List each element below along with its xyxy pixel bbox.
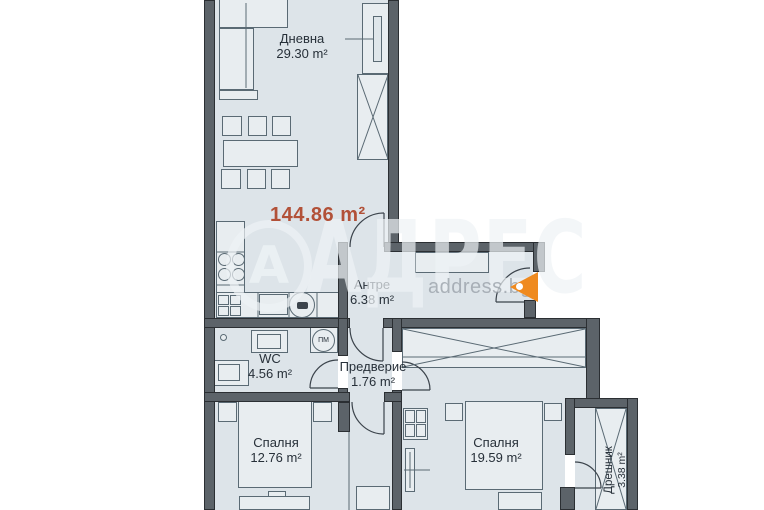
dresser-drawer: [416, 424, 426, 437]
room-area: 6.38 m²: [350, 292, 394, 307]
dresser: [498, 492, 542, 510]
room-name: WC: [259, 351, 281, 366]
floor-plan: ПМ: [0, 0, 764, 510]
cabinet: [356, 486, 390, 510]
room-name: Спалня: [253, 435, 298, 450]
room-area: 19.59 m²: [470, 450, 521, 465]
room-label-closet-area: 3.38 m²: [616, 452, 628, 488]
room-label-bedroom-1: Спалня 12.76 m²: [250, 435, 301, 465]
nightstand: [218, 402, 237, 422]
dining-chair: [248, 116, 267, 136]
sofa-side: [219, 28, 254, 90]
room-label-closet-name: Дрешник: [603, 446, 615, 494]
sofa-armrest: [219, 90, 258, 100]
wall: [338, 402, 350, 432]
wardrobe: [357, 74, 388, 160]
wall: [392, 318, 402, 352]
entrance-marker-dot: [516, 283, 523, 290]
room-label-vestibule: Предверие 1.76 m²: [340, 359, 407, 389]
wall: [560, 487, 575, 510]
room-name: Антре: [354, 277, 390, 292]
cooktop-burner: [232, 268, 245, 281]
room-label-entrance-hall: Антре 6.38 m²: [350, 277, 394, 307]
tv-panel: [405, 448, 415, 492]
tv-panel: [373, 16, 382, 62]
wall: [586, 318, 600, 402]
wall: [204, 392, 350, 402]
dresser: [239, 496, 310, 510]
kitchen-appliance: [259, 294, 288, 315]
wall: [383, 318, 600, 328]
dining-table: [223, 140, 298, 167]
wall: [384, 392, 402, 402]
dining-chair: [247, 169, 266, 189]
room-name: Предверие: [340, 359, 407, 374]
wall: [204, 0, 215, 510]
dresser-drawer: [405, 410, 415, 423]
wall: [338, 242, 348, 328]
room-area: 29.30 m²: [276, 46, 327, 61]
wc-sink-basin: [218, 364, 240, 381]
wall: [388, 0, 399, 252]
room-name: Спалня: [473, 435, 518, 450]
wall: [204, 318, 350, 328]
dresser-drawer: [405, 424, 415, 437]
nightstand: [313, 402, 332, 422]
wall: [392, 390, 402, 510]
room-area: 12.76 m²: [250, 450, 301, 465]
wall: [524, 300, 536, 318]
dresser-drawer: [416, 410, 426, 423]
room-area: 4.56 m²: [248, 366, 292, 381]
wall: [627, 398, 638, 510]
kitchen-sink-bowl: [230, 306, 241, 316]
room-label-bedroom-2: Спалня 19.59 m²: [470, 435, 521, 465]
wall: [338, 318, 348, 356]
dishwasher-knob: [297, 302, 308, 309]
nightstand: [445, 403, 463, 421]
wc-drain: [220, 334, 227, 341]
dining-chair: [272, 116, 291, 136]
room-label-wc: WC 4.56 m²: [248, 351, 292, 381]
sofa-top: [219, 0, 288, 28]
dining-chair: [271, 169, 290, 189]
room-label-living: Дневна 29.30 m²: [276, 31, 327, 61]
hall-cabinet: [415, 252, 489, 273]
kitchen-sink-bowl: [230, 295, 241, 305]
wall: [384, 242, 545, 252]
room-name: Дневна: [280, 31, 325, 46]
cooktop-burner: [218, 268, 231, 281]
room-area: 1.76 m²: [351, 374, 395, 389]
cooktop-burner: [232, 253, 245, 266]
dining-chair: [221, 169, 241, 189]
cooktop-burner: [218, 253, 231, 266]
wall: [533, 242, 545, 272]
toilet-seat: [257, 334, 281, 349]
built-in-wardrobe: [402, 328, 586, 368]
washing-machine: ПМ: [312, 329, 335, 352]
kitchen-sink-bowl: [218, 295, 229, 305]
dining-chair: [222, 116, 242, 136]
total-area-label: 144.86 m²: [270, 204, 366, 227]
nightstand: [544, 403, 562, 421]
kitchen-sink-bowl: [218, 306, 229, 316]
wall: [565, 398, 575, 455]
